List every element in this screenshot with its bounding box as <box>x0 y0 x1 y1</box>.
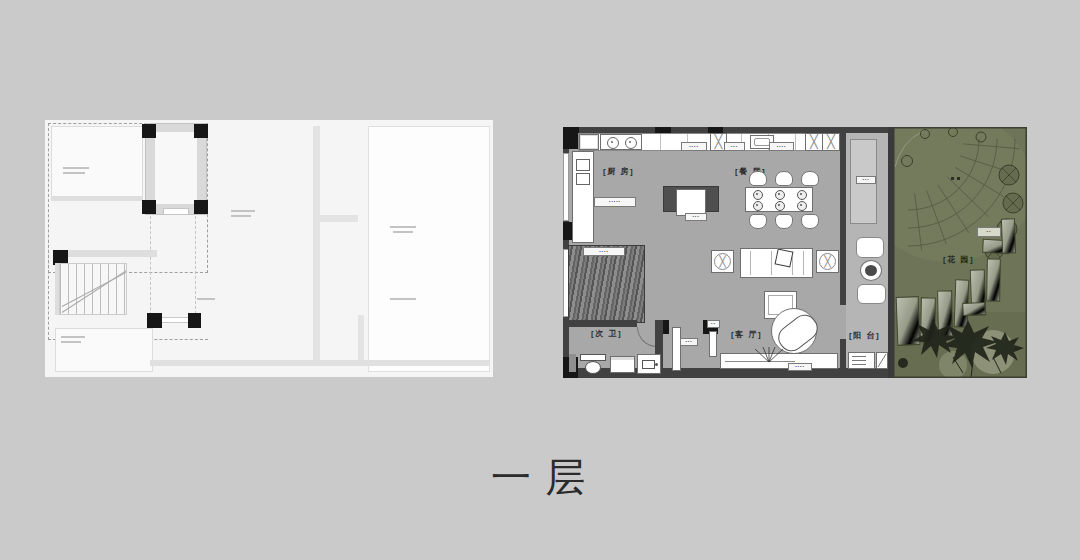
column <box>142 124 156 138</box>
kitchen-label: [厨 房] <box>603 166 634 177</box>
plate-icon <box>775 201 785 211</box>
column <box>563 127 579 149</box>
washer-line <box>852 364 866 365</box>
wall <box>320 215 358 222</box>
door-leaf <box>709 331 717 357</box>
annotation-mark <box>63 167 89 169</box>
side-table: ╳ <box>711 250 734 273</box>
wall <box>358 315 364 360</box>
sink-icon <box>576 159 590 171</box>
garden-label: [花 园] <box>943 254 974 265</box>
toilet-bowl <box>585 361 601 374</box>
label-chip: •••• <box>788 363 812 371</box>
stair-break-line <box>62 269 127 307</box>
bath-label: [次 卫] <box>591 328 622 339</box>
label-chip: ••• <box>680 338 698 346</box>
door-lintel <box>162 317 188 323</box>
side-table: ╳ <box>816 250 839 273</box>
vanity <box>610 356 635 373</box>
balcony-table <box>857 284 886 304</box>
tower-interior <box>155 132 197 204</box>
balcony-planter <box>860 260 882 281</box>
garden-area <box>893 127 1027 378</box>
label-chip: •••• <box>583 247 625 256</box>
dining-chair <box>775 171 793 186</box>
wall-balcony <box>840 127 846 305</box>
cabinet-x: ╳ <box>822 133 840 151</box>
column <box>147 313 162 328</box>
cabinet-x: ╳ <box>805 133 823 151</box>
dining-table <box>745 187 813 212</box>
tower-door <box>163 208 189 215</box>
wall <box>51 196 143 201</box>
label-chip: ••• <box>724 142 745 151</box>
column <box>194 200 208 214</box>
wall <box>150 360 490 366</box>
annotation-mark <box>61 341 81 343</box>
annotation-mark <box>393 231 413 233</box>
wall-bath-top <box>568 320 637 327</box>
living-label: [客 厅] <box>731 329 762 340</box>
corridor-cabinet <box>672 327 681 371</box>
plate-icon <box>753 201 763 211</box>
annotation-mark <box>63 172 85 174</box>
washer-line <box>852 360 866 361</box>
cooktop <box>600 134 642 150</box>
label-chip: ••• <box>685 213 707 221</box>
kitchen-sink-cabinet <box>579 134 599 150</box>
faucet-icon <box>655 363 658 366</box>
plate-icon <box>775 190 785 200</box>
label-chip: ••••• <box>594 197 636 207</box>
sink-counter <box>637 354 661 374</box>
lineplan-large-room <box>368 126 490 372</box>
label-chip: ••• <box>856 176 876 184</box>
plumbing-unit <box>569 354 576 372</box>
wall-balcony <box>840 339 846 378</box>
sink-icon <box>642 360 655 369</box>
fan-table-icon: ╳ <box>819 253 837 271</box>
label-chip: •••• <box>681 142 707 151</box>
lineplan-room-topleft <box>51 126 143 198</box>
balcony-corner-unit <box>876 352 888 369</box>
window <box>563 153 569 221</box>
column <box>194 124 208 138</box>
dining-chair <box>775 214 793 229</box>
annotation-mark <box>231 210 255 212</box>
plate-icon <box>797 201 807 211</box>
fan-table-icon: ╳ <box>714 253 732 271</box>
dining-chair <box>801 171 819 186</box>
label-chip: •• <box>977 227 1001 237</box>
label-chip: •••• <box>769 142 794 151</box>
floor-title: 一层 <box>450 450 640 505</box>
column <box>188 313 201 328</box>
sofa-seam <box>771 251 772 275</box>
wall <box>313 126 320 360</box>
dining-chair <box>801 214 819 229</box>
burner-icon <box>607 137 619 149</box>
washer-icon <box>848 352 875 369</box>
diagonal-mark <box>877 353 887 368</box>
sofa-pillow <box>775 249 794 268</box>
sink-icon <box>576 173 590 185</box>
annotation-mark <box>61 336 85 338</box>
dining-chair <box>749 214 767 229</box>
plant-fan-icon <box>751 347 787 363</box>
annotation-mark <box>390 298 416 300</box>
line-drawing-plan <box>45 120 493 377</box>
plate-icon <box>753 190 763 200</box>
rendered-plan: •• [花 园] ╳ ╳ ╳ •••• ••• •••• <box>563 127 1027 378</box>
plate-icon <box>797 190 807 200</box>
appliance-inner <box>754 138 770 146</box>
washer-line <box>852 356 866 357</box>
annotation-mark <box>390 226 416 228</box>
label-chip: •• <box>707 320 720 328</box>
planter-plant-icon <box>865 265 877 276</box>
column <box>142 200 156 214</box>
kitchen-counter <box>572 151 594 243</box>
door-swing <box>637 327 657 347</box>
page: •• [花 园] ╳ ╳ ╳ •••• ••• •••• <box>0 0 1080 560</box>
wall-garden-edge <box>888 127 894 378</box>
sofa-seam <box>750 251 751 275</box>
wall <box>65 250 157 257</box>
annotation-mark <box>197 298 215 300</box>
stone-feature-floor <box>568 245 645 323</box>
dining-chair <box>749 171 767 186</box>
staircase <box>59 263 127 315</box>
burner-icon <box>625 137 637 149</box>
annotation-mark <box>231 215 251 217</box>
balcony-label: [阳 台] <box>849 330 880 341</box>
entry-console-top <box>676 189 706 216</box>
sofa-seam <box>803 251 804 275</box>
grid-line <box>195 216 196 314</box>
lineplan-room-bottomleft <box>55 328 153 372</box>
toilet-icon <box>580 354 606 361</box>
balcony-table <box>856 237 884 258</box>
